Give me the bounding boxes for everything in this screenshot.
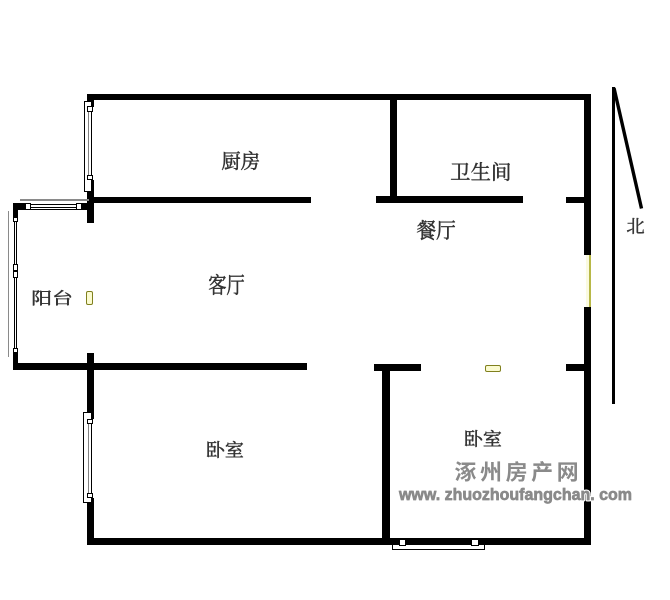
svg-text:www. zhuozhoufangchan. com: www. zhuozhoufangchan. com — [398, 486, 632, 504]
